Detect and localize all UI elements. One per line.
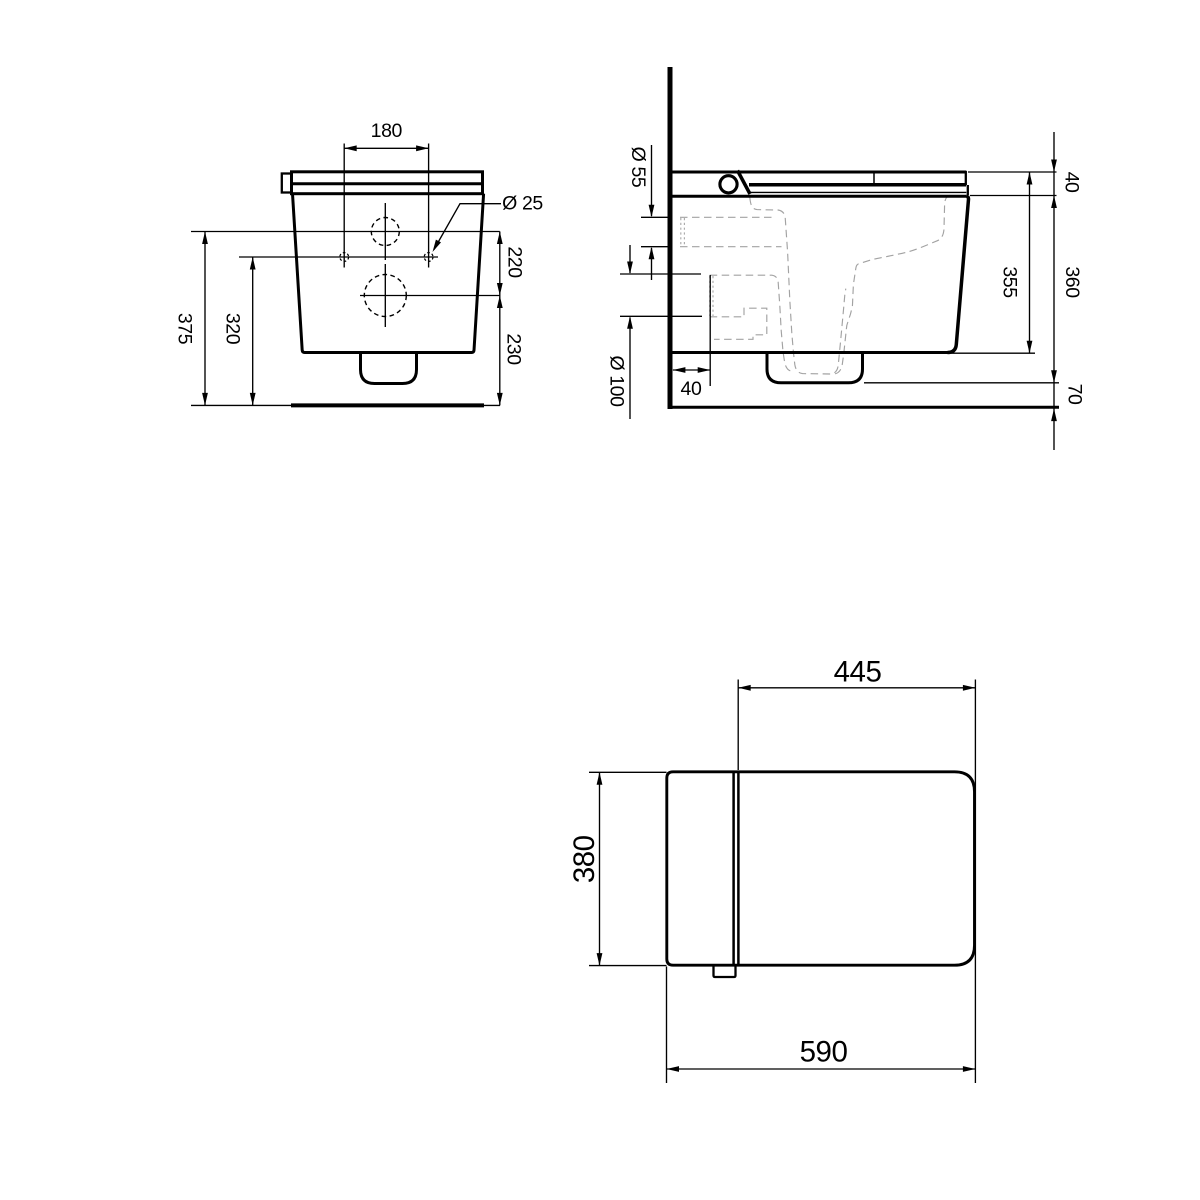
svg-text:360: 360 [1061, 266, 1083, 298]
svg-text:320: 320 [222, 313, 244, 345]
svg-text:230: 230 [503, 333, 525, 365]
svg-text:380: 380 [568, 835, 601, 883]
svg-text:40: 40 [681, 378, 702, 400]
svg-text:355: 355 [999, 266, 1021, 298]
svg-text:Ø 100: Ø 100 [606, 355, 628, 407]
svg-text:70: 70 [1064, 384, 1086, 405]
svg-text:180: 180 [371, 120, 403, 142]
svg-text:445: 445 [834, 656, 882, 689]
svg-text:40: 40 [1061, 172, 1083, 193]
svg-text:Ø 55: Ø 55 [627, 147, 649, 188]
svg-text:590: 590 [800, 1036, 848, 1069]
svg-text:375: 375 [174, 313, 196, 345]
svg-text:Ø 25: Ø 25 [502, 193, 543, 215]
svg-text:220: 220 [504, 246, 526, 278]
